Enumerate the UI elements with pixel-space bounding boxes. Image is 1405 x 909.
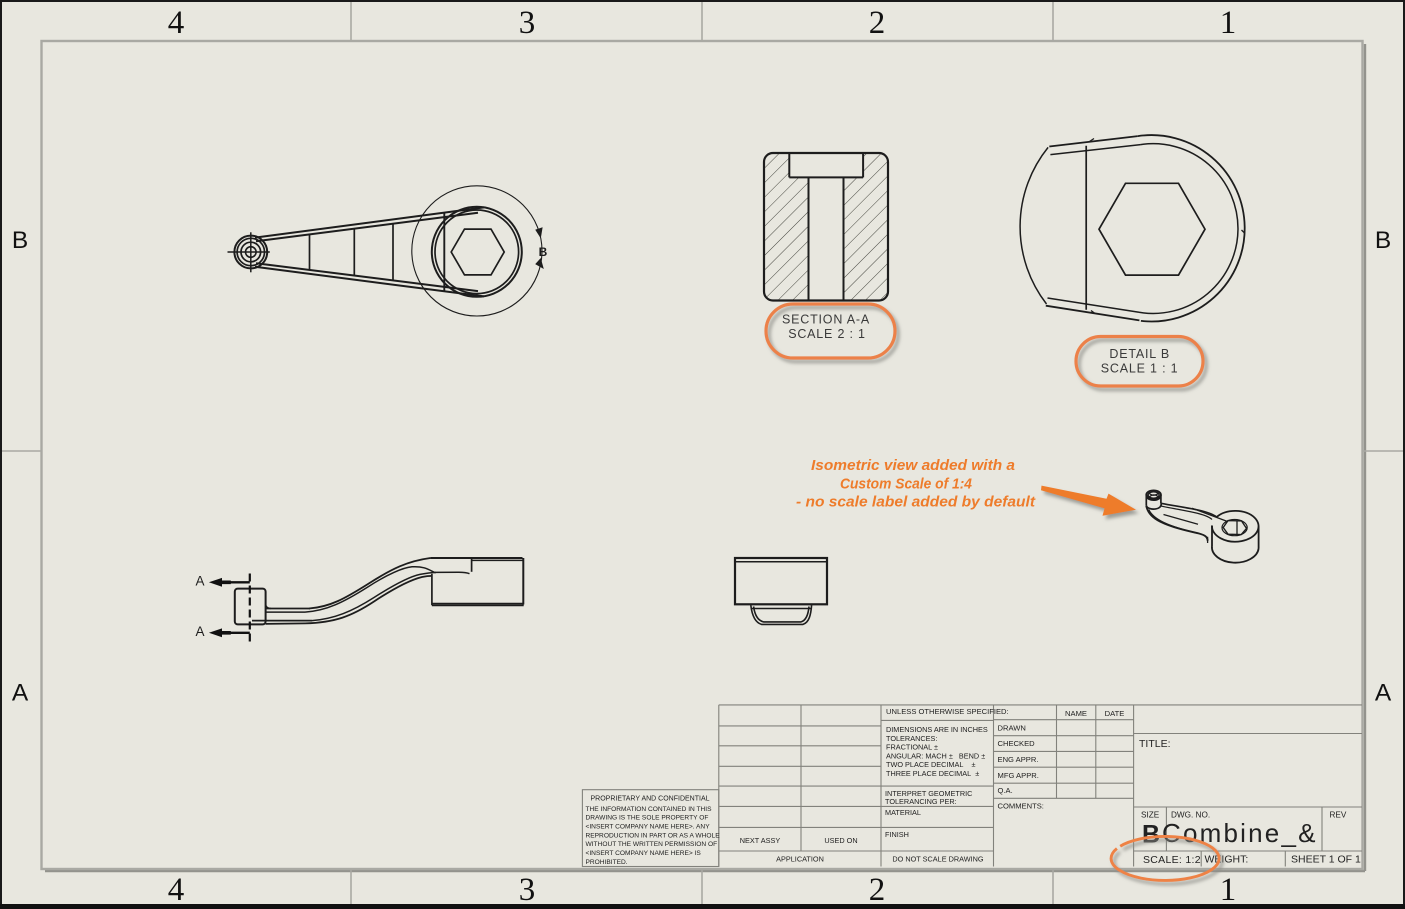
svg-text:A: A (195, 624, 204, 639)
svg-text:A: A (195, 574, 204, 589)
svg-text:DIMENSIONS ARE IN INCHES: DIMENSIONS ARE IN INCHES (886, 725, 988, 734)
svg-text:DO NOT SCALE DRAWING: DO NOT SCALE DRAWING (892, 855, 984, 864)
svg-text:NAME: NAME (1065, 709, 1087, 718)
svg-text:SHEET 1 OF 1: SHEET 1 OF 1 (1291, 854, 1361, 866)
svg-text:ENG APPR.: ENG APPR. (998, 755, 1039, 764)
svg-text:TWO PLACE DECIMAL ±: TWO PLACE DECIMAL ± (886, 760, 976, 769)
svg-text:APPLICATION: APPLICATION (776, 855, 824, 864)
svg-text:B: B (1375, 227, 1391, 254)
svg-text:2: 2 (869, 5, 886, 41)
svg-text:DRAWN: DRAWN (998, 724, 1026, 733)
svg-text:FRACTIONAL ±: FRACTIONAL ± (886, 743, 938, 752)
svg-text:WITHOUT THE WRITTEN PERMISSION: WITHOUT THE WRITTEN PERMISSION OF (586, 841, 718, 848)
svg-text:B: B (539, 245, 548, 259)
svg-text:DRAWING IS THE SOLE PROPERTY O: DRAWING IS THE SOLE PROPERTY OF (586, 815, 709, 822)
svg-text:THE INFORMATION CONTAINED IN T: THE INFORMATION CONTAINED IN THIS (586, 806, 713, 813)
svg-text:SECTION A-A: SECTION A-A (782, 313, 870, 327)
svg-text:NEXT ASSY: NEXT ASSY (740, 836, 781, 845)
svg-text:MATERIAL: MATERIAL (885, 808, 921, 817)
svg-text:MFG APPR.: MFG APPR. (998, 771, 1039, 780)
svg-text:- no scale label added by defa: - no scale label added by default (796, 495, 1036, 511)
svg-text:ANGULAR: MACH ± BEND ±: ANGULAR: MACH ± BEND ± (886, 751, 985, 760)
svg-text:REPRODUCTION IN PART OR AS A W: REPRODUCTION IN PART OR AS A WHOLE (586, 832, 721, 839)
svg-text:Isometric view added with a: Isometric view added with a (811, 458, 1015, 474)
svg-text:1: 1 (1220, 5, 1237, 41)
svg-text:DETAIL B: DETAIL B (1109, 347, 1170, 361)
svg-text:TITLE:: TITLE: (1139, 738, 1171, 750)
svg-text:SIZE: SIZE (1141, 811, 1160, 820)
svg-text:4: 4 (168, 5, 185, 41)
svg-text:2: 2 (869, 872, 886, 908)
svg-text:SCALE 2 : 1: SCALE 2 : 1 (788, 327, 866, 341)
svg-text:PROPRIETARY AND CONFIDENTIAL: PROPRIETARY AND CONFIDENTIAL (590, 796, 709, 803)
svg-text:DATE: DATE (1105, 709, 1125, 718)
svg-text:Q.A.: Q.A. (998, 786, 1013, 795)
svg-text:3: 3 (519, 872, 536, 908)
svg-text:B: B (1142, 821, 1160, 849)
svg-text:3: 3 (519, 5, 536, 41)
svg-text:TOLERANCES:: TOLERANCES: (886, 734, 937, 743)
svg-text:COMMENTS:: COMMENTS: (998, 802, 1044, 811)
svg-text:REV: REV (1330, 811, 1347, 820)
svg-text:USED ON: USED ON (824, 836, 857, 845)
svg-text:CHECKED: CHECKED (998, 739, 1036, 748)
svg-text:THREE PLACE DECIMAL ±: THREE PLACE DECIMAL ± (886, 769, 979, 778)
svg-text:FINISH: FINISH (885, 830, 909, 839)
svg-text:B: B (12, 227, 28, 254)
svg-text:WEIGHT:: WEIGHT: (1205, 854, 1249, 866)
svg-text:Combine_&: Combine_& (1162, 818, 1318, 848)
svg-text:UNLESS OTHERWISE SPECIFIED:: UNLESS OTHERWISE SPECIFIED: (886, 707, 1009, 716)
svg-text:Custom Scale of 1:4: Custom Scale of 1:4 (840, 477, 972, 493)
svg-text:SCALE 1 : 1: SCALE 1 : 1 (1101, 362, 1179, 376)
svg-text:TOLERANCING PER:: TOLERANCING PER: (885, 797, 957, 806)
svg-text:4: 4 (168, 872, 185, 908)
svg-text:A: A (12, 680, 29, 707)
svg-text:1: 1 (1220, 872, 1237, 908)
svg-text:<INSERT COMPANY NAME HERE>. A: <INSERT COMPANY NAME HERE>. ANY (586, 824, 711, 831)
svg-text:PROHIBITED.: PROHIBITED. (586, 859, 628, 866)
svg-text:A: A (1375, 680, 1392, 707)
svg-text:<INSERT COMPANY NAME HERE> IS: <INSERT COMPANY NAME HERE> IS (586, 850, 702, 857)
svg-text:SCALE: 1:2: SCALE: 1:2 (1143, 854, 1201, 866)
